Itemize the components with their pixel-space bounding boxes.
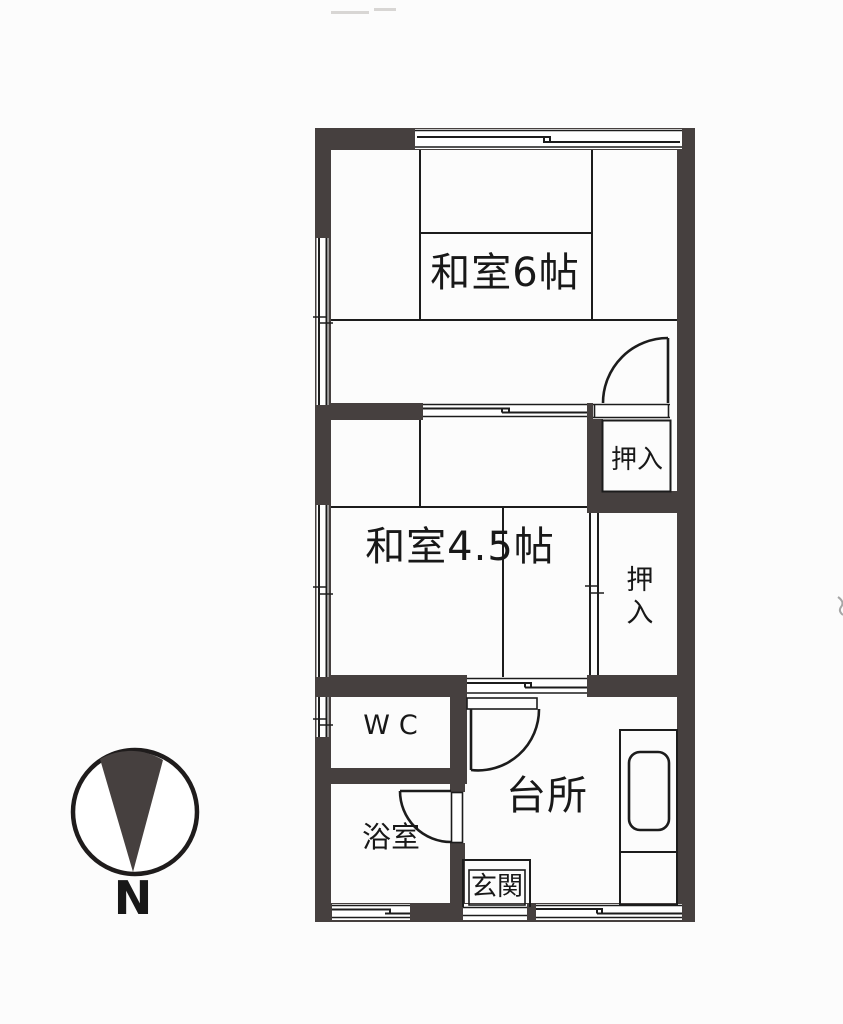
label-kitchen: 台所 xyxy=(506,775,588,817)
window-bath-bottom xyxy=(332,904,410,920)
label-wc: WC xyxy=(363,712,427,740)
window-kitchen-bottom xyxy=(536,904,682,920)
window-top xyxy=(415,129,682,149)
floor-plan-page: 和室6帖 和室4.5帖 押入 押入 WC 台所 浴室 玄関 N xyxy=(0,0,843,1024)
kitchen-counter xyxy=(620,730,677,905)
entrance-door xyxy=(463,904,527,920)
door-room6 xyxy=(603,338,668,403)
opening-closet-upper xyxy=(593,403,670,419)
label-japanese-room-45: 和室4.5帖 xyxy=(365,526,555,568)
sliding-door-room45-kitchen xyxy=(467,677,587,695)
label-japanese-room-6: 和室6帖 xyxy=(430,252,579,294)
label-closet-upper: 押入 xyxy=(611,447,663,474)
sliding-door-room6-room45 xyxy=(423,403,587,419)
scan-artifact-right xyxy=(838,597,843,615)
label-entrance: 玄関 xyxy=(471,874,523,901)
label-closet-lower: 押入 xyxy=(622,556,650,640)
kitchen-sink xyxy=(629,752,669,830)
label-compass-north: N xyxy=(114,874,153,922)
label-bathroom: 浴室 xyxy=(362,822,420,852)
closet-lower-sliding-front xyxy=(585,513,604,675)
compass xyxy=(73,750,197,874)
scan-artifacts-top xyxy=(331,8,396,14)
door-kitchen xyxy=(467,698,539,770)
